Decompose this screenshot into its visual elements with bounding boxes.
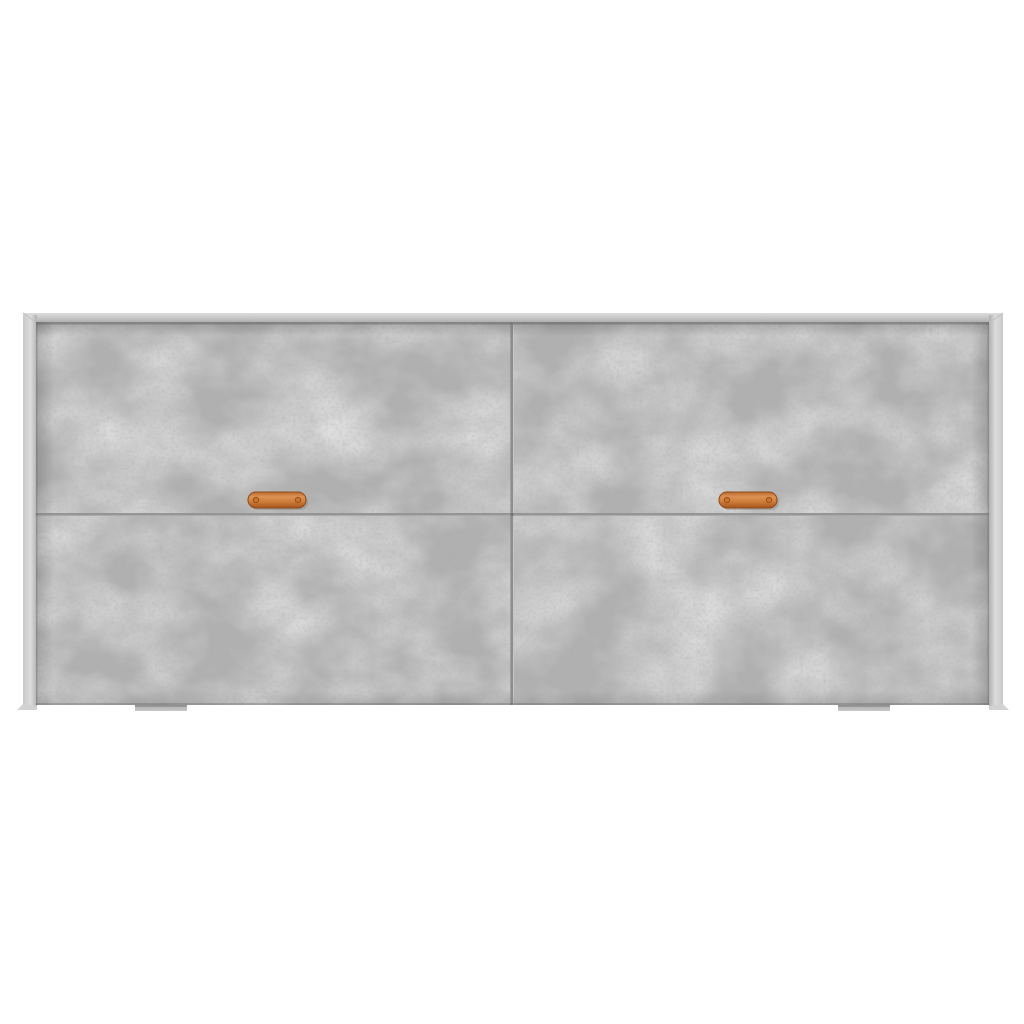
handle-left xyxy=(248,492,308,510)
handle-right-screw-left xyxy=(724,497,729,502)
seam-middle-horizontal xyxy=(36,513,989,516)
door-top-left xyxy=(36,322,511,513)
frame-left-edge xyxy=(23,315,37,707)
handle-left-screw-left xyxy=(253,497,258,502)
handle-right xyxy=(719,492,779,510)
product-photo xyxy=(0,0,1024,1024)
seam-left xyxy=(36,322,38,705)
door-bottom-left xyxy=(36,516,511,705)
door-bottom-right xyxy=(514,516,989,705)
handle-right-screw-right xyxy=(766,497,771,502)
frame-right-edge xyxy=(989,315,1003,707)
cabinet xyxy=(17,313,1009,711)
door-top-right xyxy=(514,322,989,513)
foot-left-edge xyxy=(135,705,187,707)
seam-right xyxy=(987,322,989,705)
handle-left-screw-right xyxy=(295,497,300,502)
seam-bottom xyxy=(36,703,989,705)
frame-top-edge xyxy=(23,313,1003,322)
foot-right-edge xyxy=(838,705,890,707)
